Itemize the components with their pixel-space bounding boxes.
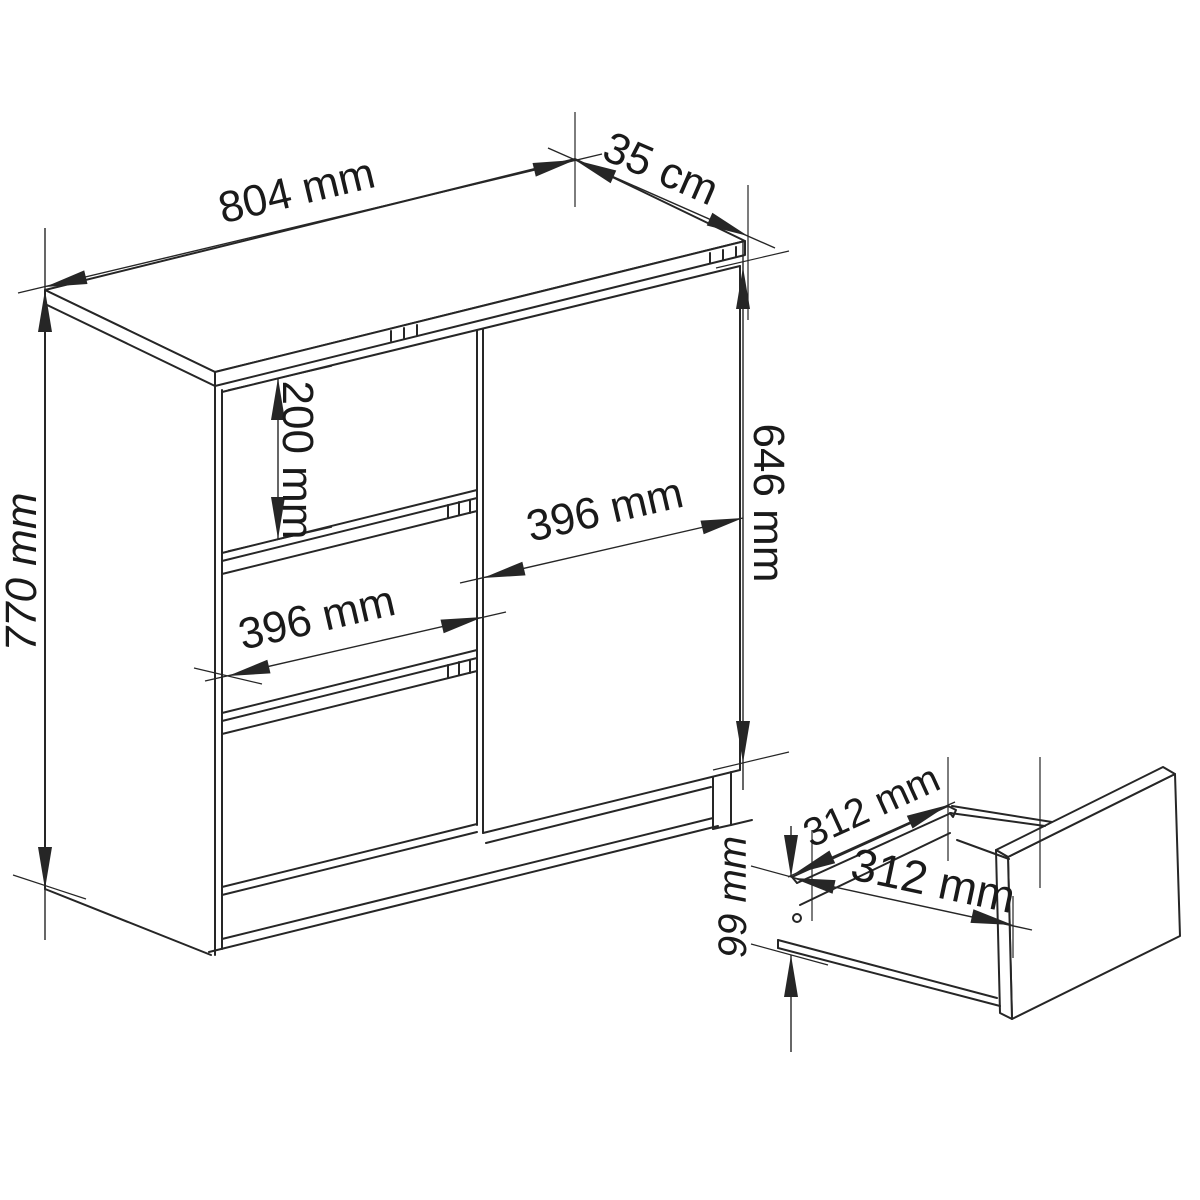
- dim-label-drawer-width: 396 mm: [234, 576, 400, 660]
- plinth-base: [209, 772, 752, 952]
- dimension-door-width: 396 mm: [460, 468, 743, 583]
- center-divider: [477, 329, 483, 833]
- drawer-front-panel: [996, 767, 1180, 1019]
- drawer-3-bottom-edge: [222, 824, 477, 887]
- drawer-2-bottom-edge: [222, 650, 477, 713]
- drawer-3-groove-edge: [222, 671, 477, 734]
- technical-drawing-canvas: 804 mm 35 cm 770 mm 200 mm: [0, 0, 1200, 1200]
- leg-front-right: [713, 772, 752, 829]
- diagram-page: 804 mm 35 cm 770 mm 200 mm: [0, 0, 1200, 1200]
- handle-groove-drawer-2-icon: [448, 500, 470, 518]
- dimension-top-drawer-height: 200 mm: [228, 366, 332, 551]
- cabinet-view: 804 mm 35 cm 770 mm 200 mm: [0, 112, 793, 955]
- dimension-height: 770 mm: [0, 228, 86, 940]
- dimension-door-height: 646 mm: [713, 240, 793, 790]
- dim-label-door-width: 396 mm: [522, 468, 688, 552]
- dim-label-drawer-height: 99 mm: [711, 836, 755, 958]
- screw-hole-mark-icon: [793, 914, 801, 922]
- dimension-drawer-side-height: 99 mm: [711, 826, 828, 1052]
- dim-label-door-height: 646 mm: [744, 424, 793, 583]
- dim-label-drawer-width: 312 mm: [847, 838, 1020, 923]
- plinth-bottom-edge: [209, 826, 718, 952]
- drawer-detail-view: 312 mm 312 mm 99 mm: [711, 756, 1180, 1052]
- drawer-bottom: [778, 940, 1000, 1006]
- door-bottom-edge: [483, 770, 740, 833]
- dim-label-height: 770 mm: [0, 493, 46, 652]
- recessed-base-top: [486, 787, 711, 843]
- drawer-2-groove-edge: [222, 511, 477, 574]
- door-panel: [483, 266, 740, 833]
- left-side-panel: [45, 304, 222, 955]
- handle-groove-drawer-3-icon: [448, 660, 470, 678]
- plinth-panel-bottom: [222, 818, 713, 939]
- dim-label-top-drawer: 200 mm: [273, 381, 322, 540]
- side-wall-back-cap: [948, 806, 956, 817]
- top-panel: [45, 159, 745, 386]
- drawer-gap-1: [222, 498, 477, 561]
